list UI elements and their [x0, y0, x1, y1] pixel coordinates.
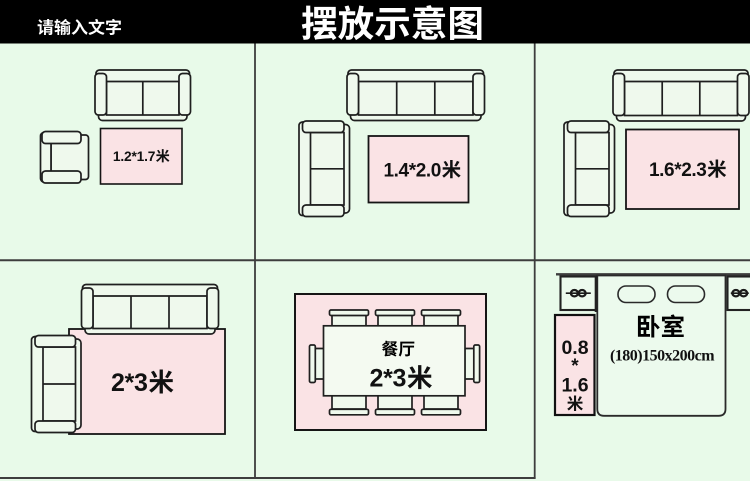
svg-text:(180)150x200cm: (180)150x200cm [610, 348, 715, 365]
svg-text:1.6: 1.6 [561, 375, 588, 397]
svg-text:2*3: 2*3 [111, 369, 148, 397]
svg-text:1.6*2.3: 1.6*2.3 [649, 160, 706, 181]
svg-text:2*3: 2*3 [370, 365, 407, 393]
svg-text:1.2*1.7: 1.2*1.7 [113, 149, 156, 164]
svg-text:1.4*2.0: 1.4*2.0 [384, 160, 441, 181]
